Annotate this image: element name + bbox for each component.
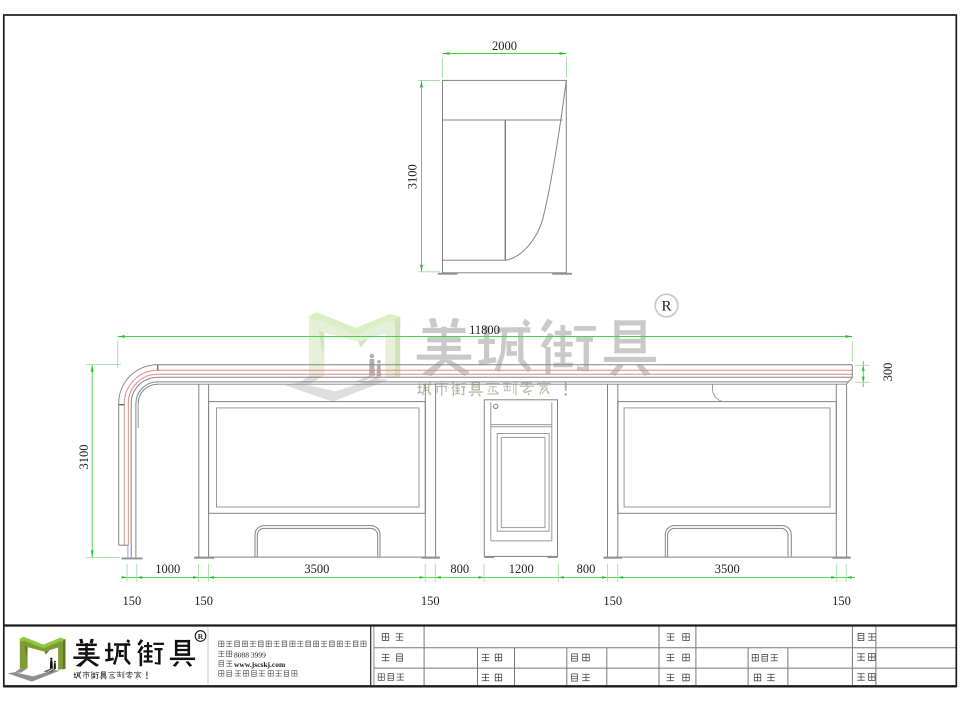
svg-text:150: 150 [194,594,213,608]
svg-text:R: R [198,632,204,641]
svg-text:R: R [661,299,671,315]
svg-text:1000: 1000 [155,562,180,576]
svg-text:1200: 1200 [509,562,534,576]
svg-text:150: 150 [421,594,440,608]
svg-text:800: 800 [577,562,596,576]
svg-text:11800: 11800 [469,323,500,337]
svg-text:150: 150 [603,594,622,608]
svg-text:3500: 3500 [715,562,740,576]
svg-text:300: 300 [881,363,895,382]
svg-text:800: 800 [450,562,469,576]
svg-text:150: 150 [832,594,851,608]
svg-text:2000: 2000 [492,39,517,53]
svg-text:150: 150 [123,594,142,608]
svg-text:3100: 3100 [405,164,419,189]
svg-text:3500: 3500 [304,562,329,576]
svg-text:3100: 3100 [77,445,91,470]
svg-text:www.jscskj.com: www.jscskj.com [234,660,286,669]
svg-text:8088 3999: 8088 3999 [234,650,266,659]
